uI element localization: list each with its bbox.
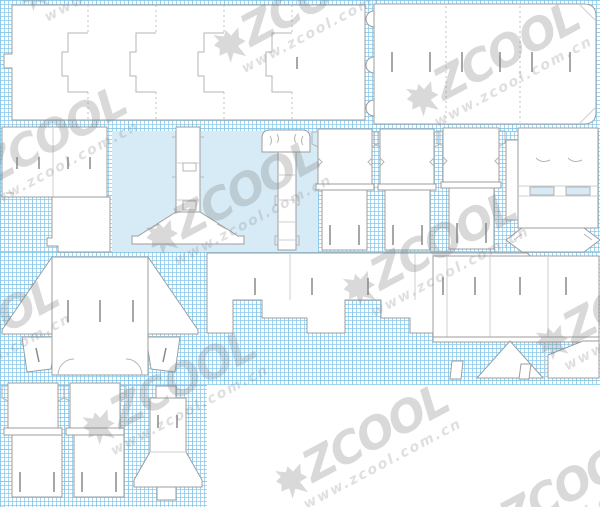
dieline-folder-panels (2, 127, 110, 252)
dieline-lid-wrap (366, 4, 596, 124)
dieline-hang-box-c (437, 128, 505, 249)
dieline-hang-box-a (312, 129, 378, 250)
template-sheet: ZCOOL www.zcool.com.cn ZCOOL www.zcool.c… (0, 0, 600, 507)
dieline-drawings (0, 0, 600, 507)
dieline-pedestal-a (132, 127, 244, 244)
dieline-carrier-bag (2, 257, 198, 375)
dieline-pedestal-b (262, 130, 310, 250)
dieline-tray-wrap (4, 5, 365, 120)
dieline-flared-stand (134, 386, 202, 500)
dieline-flap-tray (433, 256, 599, 379)
dieline-hang-box-b (374, 129, 440, 250)
dieline-hang-box-e (64, 383, 126, 497)
dieline-slot-sleeve (506, 128, 600, 252)
dieline-hang-box-d (2, 383, 64, 497)
